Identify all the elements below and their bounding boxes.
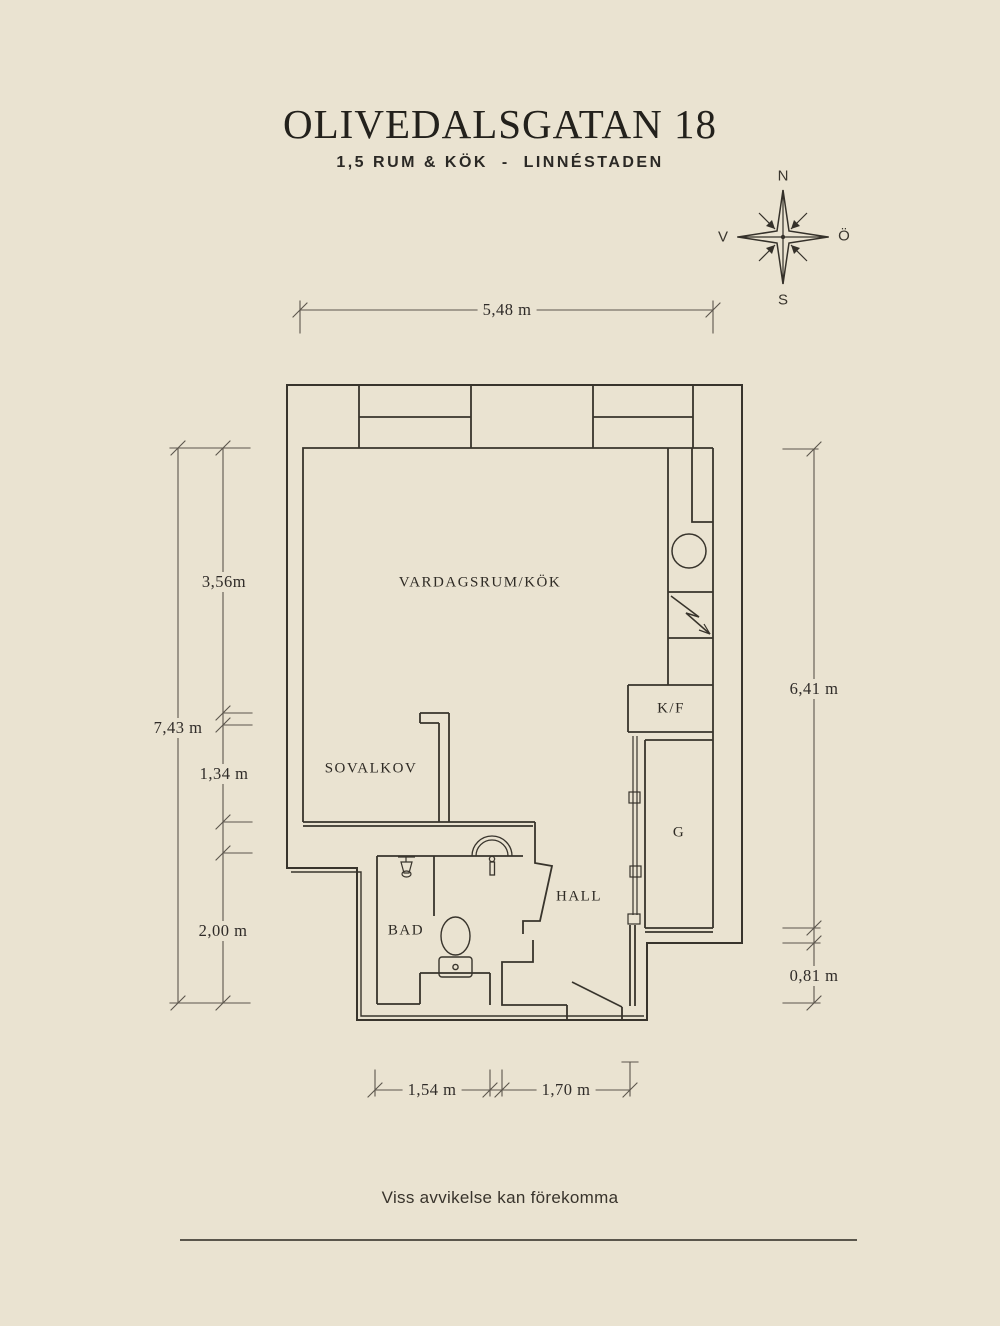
dimension-bottom-right: 1,70 m (537, 1080, 596, 1100)
compass-north-label: N (778, 168, 789, 185)
page-title: OLIVEDALSGATAN 18 (0, 100, 1000, 148)
compass-east-label: Ö (838, 228, 850, 245)
dimension-left-upper: 3,56m (197, 572, 251, 592)
room-label-living-kitchen: VARDAGSRUM/KÖK (399, 575, 561, 592)
compass-south-label: S (778, 292, 788, 309)
stove-icon (671, 596, 710, 634)
toilet-icon (439, 917, 472, 977)
interior-walls (303, 385, 713, 1020)
kitchen-sink-icon (672, 534, 706, 568)
compass-rose (737, 190, 829, 284)
dimension-top-width: 5,48 m (478, 300, 537, 320)
room-label-fridge-freezer: K/F (657, 701, 685, 718)
compass-west-label: V (718, 229, 728, 246)
disclaimer-text: Viss avvikelse kan förekomma (0, 1188, 1000, 1208)
dimension-left-lower: 2,00 m (194, 921, 253, 941)
page-subtitle: 1,5 RUM & KÖK - LINNÉSTADEN (0, 154, 1000, 172)
dimension-bottom-left: 1,54 m (403, 1080, 462, 1100)
room-label-wardrobe: G (673, 825, 685, 842)
room-label-bathroom: BAD (388, 923, 424, 940)
floor-plan-page: OLIVEDALSGATAN 18 1,5 RUM & KÖK - LINNÉS… (0, 0, 1000, 1326)
floor-plan-drawing (0, 0, 1000, 1326)
shower-icon (398, 857, 415, 877)
dimension-right-upper: 6,41 m (785, 679, 844, 699)
dimension-right-lower: 0,81 m (785, 966, 844, 986)
room-label-hall: HALL (556, 889, 602, 906)
dimension-lines (170, 301, 821, 1097)
room-label-sleeping-alcove: SOVALKOV (325, 761, 418, 778)
fixtures (398, 534, 710, 977)
dimension-left-total: 7,43 m (149, 718, 208, 738)
dimension-left-middle: 1,34 m (195, 764, 254, 784)
